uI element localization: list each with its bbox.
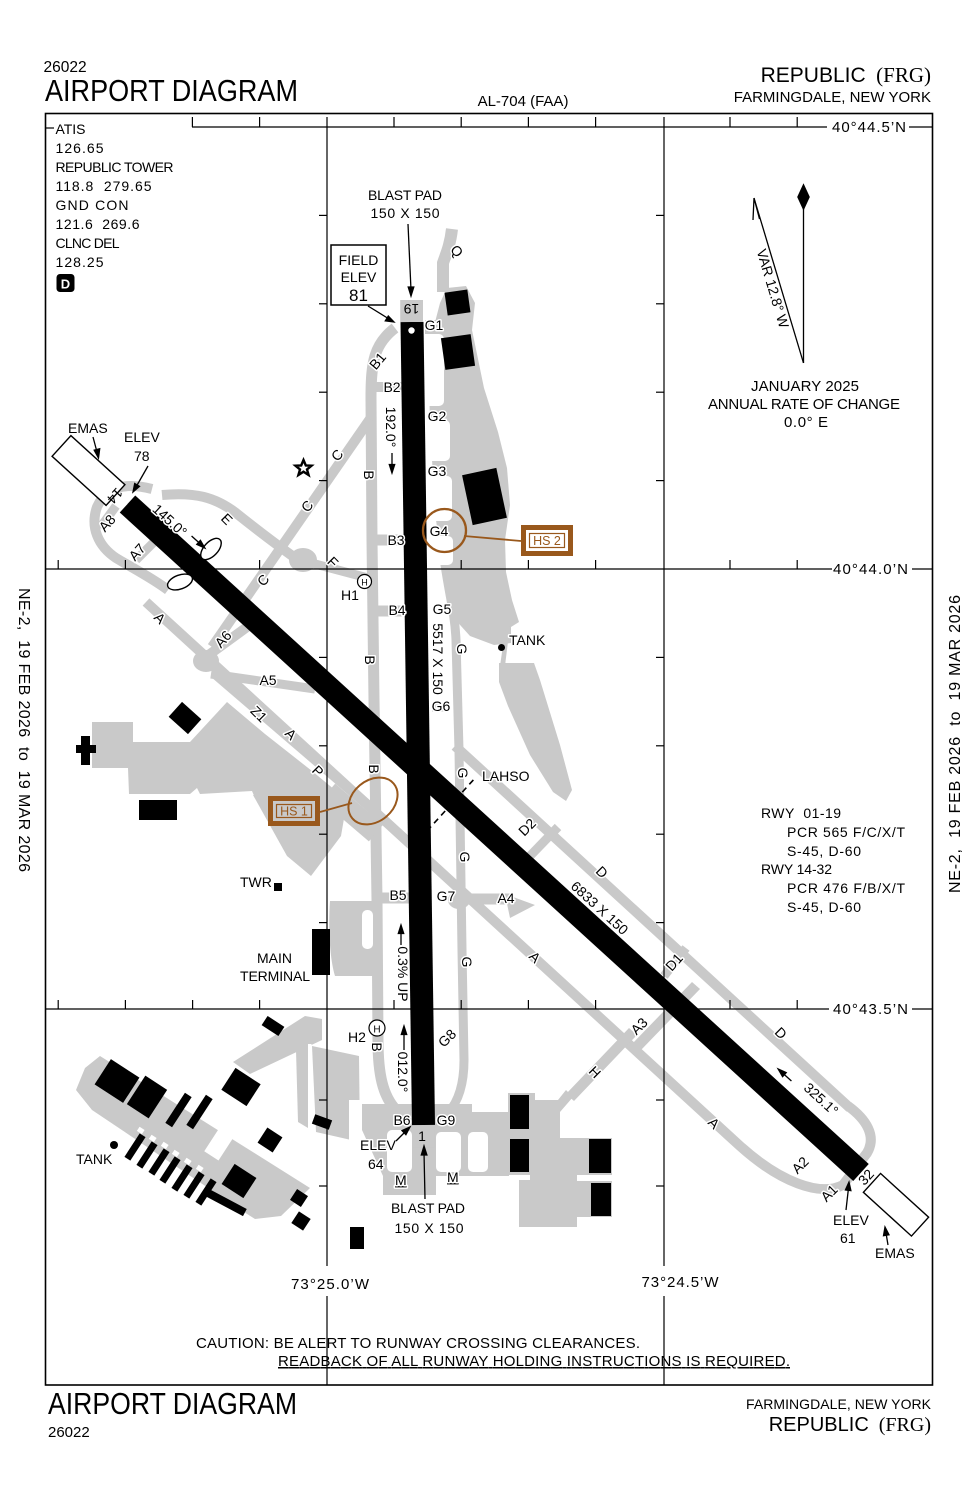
svg-text:TANK: TANK: [76, 1151, 113, 1167]
svg-text:AIRPORT DIAGRAM: AIRPORT DIAGRAM: [45, 73, 298, 108]
svg-text:ATIS: ATIS: [56, 121, 86, 137]
svg-text:REPUBLIC (FRG): REPUBLIC (FRG): [769, 1414, 931, 1436]
svg-text:19: 19: [404, 301, 420, 317]
svg-text:128.25: 128.25: [56, 254, 104, 270]
svg-text:64: 64: [368, 1156, 384, 1172]
svg-text:JANUARY 2025: JANUARY 2025: [751, 378, 859, 395]
svg-text:FARMINGDALE, NEW YORK: FARMINGDALE, NEW YORK: [746, 1396, 932, 1412]
svg-text:RWY 01-19: RWY 01-19: [761, 805, 841, 821]
svg-text:ELEV: ELEV: [341, 269, 377, 285]
svg-text:H1: H1: [341, 587, 359, 603]
svg-text:B: B: [361, 470, 377, 479]
svg-text:REPUBLIC (FRG): REPUBLIC (FRG): [761, 63, 931, 87]
svg-text:B: B: [369, 1042, 385, 1051]
svg-text:EMAS: EMAS: [68, 420, 108, 436]
svg-text:A5: A5: [259, 672, 276, 688]
svg-text:61: 61: [840, 1230, 856, 1246]
svg-text:ANNUAL RATE OF CHANGE: ANNUAL RATE OF CHANGE: [708, 396, 900, 413]
svg-text:B: B: [362, 655, 378, 664]
svg-text:B2: B2: [383, 379, 400, 395]
svg-text:40°44.5’N: 40°44.5’N: [832, 119, 906, 136]
svg-text:MAIN: MAIN: [257, 950, 292, 966]
svg-text:012.0°: 012.0°: [395, 1052, 411, 1093]
svg-text:FARMINGDALE, NEW YORK: FARMINGDALE, NEW YORK: [734, 89, 931, 106]
svg-text:HS 1: HS 1: [280, 805, 308, 819]
svg-text:READBACK OF ALL RUNWAY HOLDING: READBACK OF ALL RUNWAY HOLDING INSTRUCTI…: [278, 1353, 790, 1370]
svg-text:5517 X 150: 5517 X 150: [430, 623, 446, 695]
svg-text:TWR: TWR: [240, 874, 272, 890]
svg-text:G: G: [459, 957, 475, 968]
svg-text:G: G: [457, 852, 473, 863]
svg-text:A4: A4: [497, 890, 514, 906]
svg-text:ELEV: ELEV: [124, 429, 160, 445]
svg-text:73°25.0’W: 73°25.0’W: [291, 1276, 370, 1293]
svg-text:40°43.5’N: 40°43.5’N: [833, 1001, 908, 1018]
svg-text:81: 81: [349, 286, 368, 305]
svg-text:FIELD: FIELD: [339, 252, 379, 268]
svg-text:G7: G7: [437, 888, 456, 904]
svg-text:HS 2: HS 2: [533, 534, 561, 548]
svg-text:G: G: [454, 644, 470, 655]
svg-text:BLAST PAD: BLAST PAD: [391, 1200, 465, 1216]
svg-text:M: M: [447, 1169, 459, 1185]
svg-text:M: M: [395, 1172, 407, 1188]
svg-text:B: B: [366, 764, 382, 773]
svg-text:NE-2, 19 FEB 2026 to 19 MAR: NE-2, 19 FEB 2026 to 19 MAR 2026: [15, 588, 32, 872]
svg-text:B6: B6: [393, 1112, 410, 1128]
svg-text:TERMINAL: TERMINAL: [240, 968, 310, 984]
svg-text:G: G: [455, 768, 471, 779]
svg-text:78: 78: [134, 448, 150, 464]
svg-text:0.0° E: 0.0° E: [784, 414, 828, 431]
svg-text:G9: G9: [437, 1112, 456, 1128]
svg-text:121.6 269.6: 121.6 269.6: [56, 216, 140, 232]
svg-text:26022: 26022: [48, 1424, 90, 1441]
svg-text:AIRPORT DIAGRAM: AIRPORT DIAGRAM: [48, 1386, 297, 1421]
svg-text:G4: G4: [430, 523, 449, 539]
svg-text:NE-2, 19 FEB 2026 to 19 MAR: NE-2, 19 FEB 2026 to 19 MAR 2026: [947, 595, 964, 893]
svg-text:G3: G3: [428, 463, 447, 479]
svg-text:CLNC DEL: CLNC DEL: [56, 235, 120, 251]
svg-text:0.3% UP: 0.3% UP: [395, 946, 411, 1001]
svg-text:AL-704 (FAA): AL-704 (FAA): [478, 93, 569, 110]
svg-text:ELEV: ELEV: [360, 1137, 396, 1153]
svg-text:118.8 279.65: 118.8 279.65: [56, 178, 152, 194]
svg-text:G1: G1: [425, 317, 444, 333]
svg-text:D: D: [61, 277, 70, 292]
svg-text:CAUTION: BE ALERT TO RUNWAY CR: CAUTION: BE ALERT TO RUNWAY CROSSING CLE…: [196, 1335, 640, 1352]
svg-text:REPUBLIC TOWER: REPUBLIC TOWER: [56, 159, 174, 175]
svg-text:40°44.0’N: 40°44.0’N: [833, 561, 908, 578]
svg-text:S-45, D-60: S-45, D-60: [787, 899, 861, 915]
svg-text:H: H: [361, 578, 368, 588]
svg-text:150 X 150: 150 X 150: [371, 205, 440, 221]
svg-text:G6: G6: [432, 698, 451, 714]
svg-text:LAHSO: LAHSO: [482, 768, 530, 784]
svg-text:PCR 565 F/C/X/T: PCR 565 F/C/X/T: [787, 824, 905, 840]
svg-text:192.0°: 192.0°: [383, 407, 399, 448]
svg-text:B3: B3: [387, 532, 404, 548]
svg-text:B4: B4: [388, 602, 405, 618]
svg-text:EMAS: EMAS: [875, 1245, 915, 1261]
svg-text:G5: G5: [433, 601, 452, 617]
svg-text:H: H: [373, 1025, 380, 1036]
svg-text:B5: B5: [389, 887, 406, 903]
svg-text:1: 1: [418, 1128, 426, 1144]
svg-text:PCR 476 F/B/X/T: PCR 476 F/B/X/T: [787, 880, 905, 896]
svg-text:73°24.5’W: 73°24.5’W: [642, 1274, 720, 1291]
svg-text:S-45, D-60: S-45, D-60: [787, 843, 861, 859]
svg-text:126.65: 126.65: [56, 140, 104, 156]
svg-text:G2: G2: [428, 408, 447, 424]
svg-text:BLAST PAD: BLAST PAD: [368, 187, 442, 203]
svg-text:TANK: TANK: [509, 632, 546, 648]
svg-text:150 X 150: 150 X 150: [395, 1220, 464, 1236]
svg-text:RWY 14-32: RWY 14-32: [761, 861, 832, 877]
svg-text:ELEV: ELEV: [833, 1212, 869, 1228]
svg-text:H2: H2: [348, 1029, 366, 1045]
